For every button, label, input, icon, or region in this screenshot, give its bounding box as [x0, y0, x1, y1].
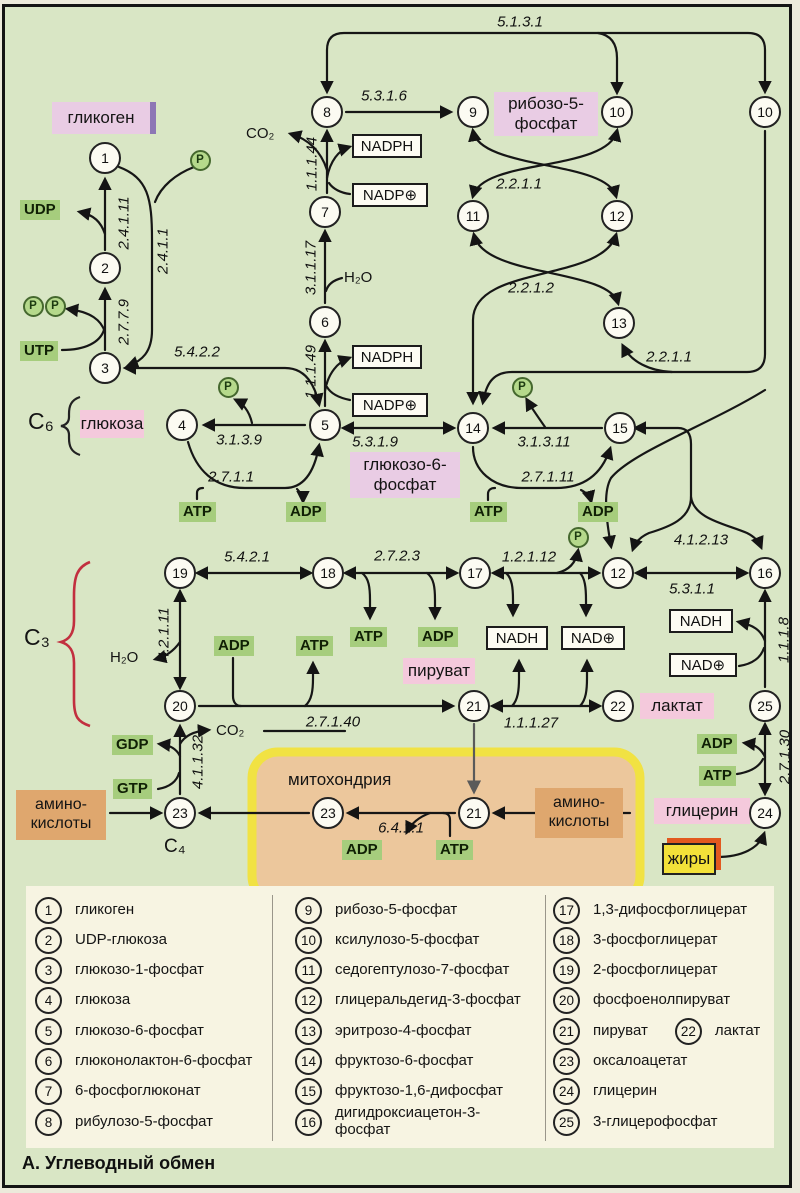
legend-entry: 16дигидроксиацетон-3- фосфат	[295, 1108, 480, 1136]
legend-entry: 11седогептулозо-7-фосфат	[295, 957, 509, 985]
pathway-arrow	[236, 400, 252, 423]
legend-node-17: 17	[553, 897, 580, 924]
coenzyme-box: NADPH	[352, 134, 422, 158]
coenzyme-box: NAD⊕	[561, 626, 625, 650]
metabolite-node-22: 22	[602, 690, 634, 722]
metabolite-node-7: 7	[309, 196, 341, 228]
ec-number-label: 1.1.1.49	[303, 345, 320, 399]
ec-number-label: 4.1.1.32	[190, 735, 207, 789]
legend-label: 3-фосфоглицерат	[593, 932, 717, 949]
legend-label: пируват	[593, 1023, 648, 1040]
legend-label: 1,3-дифосфоглицерат	[593, 902, 747, 919]
legend-node-4: 4	[35, 987, 62, 1014]
phosphate-marker: P	[568, 527, 589, 548]
figure-title: А. Углеводный обмен	[22, 1153, 215, 1174]
phosphate-marker: P	[512, 377, 533, 398]
legend-entry: 253-глицерофосфат	[553, 1108, 717, 1136]
metabolite-node-5: 5	[309, 409, 341, 441]
metabolite-node-18: 18	[312, 557, 344, 589]
pathway-arrow	[473, 131, 616, 196]
legend-node-14: 14	[295, 1048, 322, 1075]
pathway-arrow	[739, 648, 764, 666]
pathway-arrow	[68, 309, 105, 332]
pathway-arrow	[362, 573, 370, 617]
coenzyme-box: NAD⊕	[669, 653, 737, 677]
ec-number-label: 1.2.1.12	[502, 549, 556, 566]
pathway-arrow	[527, 400, 545, 427]
pathway-arrow	[80, 212, 105, 234]
ec-number-label: 1.1.1.8	[776, 617, 793, 663]
metabolite-node-15: 15	[604, 412, 636, 444]
legend-label: UDP-глюкоза	[75, 932, 167, 949]
pathway-arrow	[636, 428, 691, 497]
metabolite-node-11: 11	[457, 200, 489, 232]
metabolite-node-20: 20	[164, 690, 196, 722]
legend-label: глицерин	[593, 1083, 657, 1100]
pathway-arrow	[488, 488, 495, 500]
metabolite-node-6: 6	[309, 306, 341, 338]
cofactor-label-udp: UDP	[20, 200, 60, 220]
legend-label: лактат	[715, 1023, 760, 1040]
ec-number-label: 6.4.1.1	[378, 820, 424, 837]
legend-entry: 2UDP-глюкоза	[35, 926, 167, 954]
cofactor-label-utp: UTP	[20, 341, 58, 361]
c6-brace	[61, 397, 80, 455]
legend-label: глюкозо-6-фосфат	[75, 1023, 204, 1040]
pathway-arrow	[580, 573, 586, 614]
ec-number-label: 5.3.1.1	[669, 581, 715, 598]
metabolite-node-21: 21	[458, 797, 490, 829]
legend-node-25: 25	[553, 1109, 580, 1136]
legend-entry: 6глюконолактон-6-фосфат	[35, 1048, 252, 1076]
coenzyme-box: NADP⊕	[352, 393, 428, 417]
pathway-arrow	[557, 551, 578, 573]
legend-entry: 192-фосфоглицерат	[553, 957, 717, 985]
ec-number-label: 2.7.2.3	[374, 548, 420, 565]
metabolite-label: рибозо-5- фосфат	[494, 92, 598, 136]
legend-entry: 76-фосфоглюконат	[35, 1078, 201, 1106]
metabolite-node-23: 23	[312, 797, 344, 829]
legend-node-8: 8	[35, 1109, 62, 1136]
pathway-arrow	[745, 743, 765, 757]
ec-number-label: 2.4.1.11	[116, 196, 133, 249]
metabolite-label: амино- кислоты	[16, 790, 106, 840]
metabolite-node-23: 23	[164, 797, 196, 829]
metabolite-node-17: 17	[459, 557, 491, 589]
metabolite-node-12: 12	[602, 557, 634, 589]
legend-label: 6-фосфоглюконат	[75, 1083, 201, 1100]
ec-number-label: 5.3.1.9	[352, 434, 398, 451]
legend-node-5: 5	[35, 1018, 62, 1045]
pathway-arrow	[506, 573, 513, 614]
legend-node-6: 6	[35, 1048, 62, 1075]
legend-entry: 183-фосфоглицерат	[553, 926, 717, 954]
ec-number-label: 2.2.1.2	[508, 280, 554, 297]
legend-label: глюкозо-1-фосфат	[75, 962, 204, 979]
legend-node-1: 1	[35, 897, 62, 924]
legend-node-2: 2	[35, 927, 62, 954]
metabolite-node-1: 1	[89, 142, 121, 174]
legend-label: ксилулозо-5-фосфат	[335, 932, 479, 949]
pathway-arrow	[155, 167, 194, 202]
legend-node-7: 7	[35, 1078, 62, 1105]
metabolite-node-21: 21	[458, 690, 490, 722]
metabolite-node-24: 24	[749, 797, 781, 829]
pathway-arrow	[326, 278, 342, 291]
pathway-arrow	[739, 622, 765, 641]
legend-label: 3-глицерофосфат	[593, 1114, 717, 1131]
pathway-arrow	[606, 390, 765, 546]
legend-entry: 8рибулозо-5-фосфат	[35, 1108, 213, 1136]
cofactor-label-adp: ADP	[578, 502, 618, 522]
diagram-text: митохондрия	[288, 770, 391, 790]
legend-node-24: 24	[553, 1078, 580, 1105]
cofactor-label-adp: ADP	[697, 734, 737, 754]
coenzyme-box: NADH	[486, 626, 548, 650]
diagram-text: C₄	[164, 836, 185, 858]
ec-number-label: 5.1.3.1	[497, 14, 543, 31]
ec-number-label: 2.2.1.1	[496, 176, 542, 193]
pathway-arrow	[327, 387, 350, 400]
legend-entry: 13эритрозо-4-фосфат	[295, 1017, 472, 1045]
cofactor-label-adp: ADP	[342, 840, 382, 860]
ec-number-label: 2.7.1.40	[306, 714, 360, 731]
pathway-arrow	[737, 759, 763, 774]
metabolite-label: пируват	[403, 658, 475, 684]
metabolite-node-19: 19	[164, 557, 196, 589]
legend-label: глюкоза	[75, 992, 130, 1009]
ec-number-label: 5.4.2.1	[224, 549, 270, 566]
cofactor-label-atp: ATP	[179, 502, 216, 522]
cofactor-label-adp: ADP	[214, 636, 254, 656]
legend-entry: 3глюкозо-1-фосфат	[35, 957, 204, 985]
pathway-arrow	[327, 33, 765, 91]
ec-number-label: 3.1.3.11	[517, 434, 570, 451]
page: А. Углеводный обмен 12345678910101112131…	[0, 0, 800, 1193]
ec-number-label: 4.1.2.13	[674, 532, 728, 549]
legend-entry: 23оксалоацетат	[553, 1048, 687, 1076]
phosphate-marker: P	[218, 377, 239, 398]
pathway-arrow	[598, 33, 617, 92]
pathway-arrow	[329, 183, 350, 194]
phosphate-marker: P	[23, 296, 44, 317]
pathway-arrow	[62, 330, 104, 350]
diagram-text: C₆	[28, 408, 54, 435]
cofactor-label-gtp: GTP	[113, 779, 152, 799]
legend-entry: 171,3-дифосфоглицерат	[553, 896, 747, 924]
legend-label: гликоген	[75, 902, 134, 919]
legend-entry: 5глюкозо-6-фосфат	[35, 1017, 204, 1045]
legend-label: рибулозо-5-фосфат	[75, 1114, 213, 1131]
legend-entry: 20фосфоенолпируват	[553, 987, 730, 1015]
pathway-arrow	[297, 489, 303, 501]
phosphate-marker: P	[45, 296, 66, 317]
metabolite-label: лактат	[640, 693, 714, 719]
diagram-text: H₂O	[344, 269, 372, 286]
metabolite-label: глюкозо-6- фосфат	[350, 452, 460, 498]
pathway-arrow	[580, 662, 587, 706]
legend-divider	[272, 895, 273, 1141]
legend-entry: 14фруктозо-6-фосфат	[295, 1048, 473, 1076]
legend-node-19: 19	[553, 957, 580, 984]
legend-node-15: 15	[295, 1078, 322, 1105]
cofactor-label-atp: ATP	[470, 502, 507, 522]
metabolite-label: амино- кислоты	[535, 788, 623, 838]
ec-number-label: 2.7.7.9	[116, 299, 133, 345]
pathway-arrow	[158, 773, 179, 789]
ec-number-label: 3.1.3.9	[216, 432, 262, 449]
legend-label: эритрозо-4-фосфат	[335, 1023, 472, 1040]
pathway-arrow	[427, 573, 435, 617]
metabolite-node-14: 14	[457, 412, 489, 444]
legend-entry: 12глицеральдегид-3-фосфат	[295, 987, 521, 1015]
coenzyme-box: NADPH	[352, 345, 422, 369]
coenzyme-box: NADP⊕	[352, 183, 428, 207]
pathway-arrow	[581, 490, 591, 501]
legend-node-9: 9	[295, 897, 322, 924]
metabolite-node-9: 9	[457, 96, 489, 128]
legend-entry: 24глицерин	[553, 1078, 657, 1106]
metabolite-label: глицерин	[654, 798, 750, 824]
legend-node-23: 23	[553, 1048, 580, 1075]
legend-node-20: 20	[553, 987, 580, 1014]
ec-number-label: 2.7.1.1	[208, 469, 254, 486]
diagram-text: CO₂	[246, 125, 274, 142]
legend-entry: 10ксилулозо-5-фосфат	[295, 926, 479, 954]
cofactor-label-atp: ATP	[350, 627, 387, 647]
metabolite-node-8: 8	[311, 96, 343, 128]
diagram-text: C₃	[24, 624, 50, 651]
cofactor-label-adp: ADP	[286, 502, 326, 522]
legend-label: седогептулозо-7-фосфат	[335, 962, 509, 979]
legend-node-10: 10	[295, 927, 322, 954]
legend-divider	[545, 895, 546, 1141]
phosphate-marker: P	[190, 150, 211, 171]
pathway-arrow	[160, 744, 180, 756]
pathway-arrow	[717, 834, 764, 857]
ec-number-label: 2.7.1.11	[521, 469, 574, 486]
legend-node-11: 11	[295, 957, 322, 984]
legend-node-3: 3	[35, 957, 62, 984]
legend-entry: 4глюкоза	[35, 987, 130, 1015]
legend-label: фруктозо-1,6-дифосфат	[335, 1083, 503, 1100]
metabolite-node-25: 25	[749, 690, 781, 722]
legend-label: фруктозо-6-фосфат	[335, 1053, 473, 1070]
metabolite-label: жиры	[662, 843, 716, 875]
diagram-text: CO₂	[216, 722, 244, 739]
legend-node-18: 18	[553, 927, 580, 954]
ec-number-label: 5.3.1.6	[361, 88, 407, 105]
metabolite-node-16: 16	[749, 557, 781, 589]
cofactor-label-adp: ADP	[418, 627, 458, 647]
ec-number-label: 1.1.1.44	[304, 137, 321, 191]
ec-number-label: 2.7.1.30	[777, 730, 794, 784]
metabolite-node-4: 4	[166, 409, 198, 441]
legend-node-16: 16	[295, 1109, 322, 1136]
pathway-arrow	[305, 664, 313, 706]
legend-entry: 9рибозо-5-фосфат	[295, 896, 457, 924]
ec-number-label: 3.1.1.17	[303, 241, 320, 295]
metabolite-node-10: 10	[601, 96, 633, 128]
legend-label: фосфоенолпируват	[593, 992, 730, 1009]
cofactor-label-atp: ATP	[296, 636, 333, 656]
pathway-arrow	[233, 658, 241, 706]
pathway-arrow	[473, 131, 617, 196]
legend-label: рибозо-5-фосфат	[335, 902, 457, 919]
c3-brace	[61, 562, 90, 726]
pathway-arrow	[325, 358, 349, 391]
metabolite-node-12: 12	[601, 200, 633, 232]
legend-label: глюконолактон-6-фосфат	[75, 1053, 252, 1070]
legend-node-12: 12	[295, 987, 322, 1014]
ec-number-label: 4.2.1.11	[156, 607, 173, 660]
metabolite-node-13: 13	[603, 307, 635, 339]
legend-node-22: 22	[675, 1018, 702, 1045]
ec-number-label: 2.2.1.1	[646, 349, 692, 366]
legend-node-13: 13	[295, 1018, 322, 1045]
diagram-text: H₂O	[110, 649, 138, 666]
legend-label: глицеральдегид-3-фосфат	[335, 992, 521, 1009]
metabolite-label: гликоген	[52, 102, 156, 134]
legend-node-21: 21	[553, 1018, 580, 1045]
metabolite-node-2: 2	[89, 252, 121, 284]
ec-number-label: 1.1.1.27	[504, 715, 558, 732]
cofactor-label-atp: ATP	[699, 766, 736, 786]
legend-entry: 15фруктозо-1,6-дифосфат	[295, 1078, 503, 1106]
pathway-arrow	[197, 488, 203, 499]
legend-entry: 21пируват22лактат	[553, 1017, 760, 1045]
pathway-arrow	[512, 662, 519, 706]
legend-label: оксалоацетат	[593, 1053, 687, 1070]
metabolite-label: глюкоза	[80, 410, 144, 438]
pathway-arrow	[327, 147, 349, 178]
cofactor-label-gdp: GDP	[112, 735, 153, 755]
metabolite-node-10: 10	[749, 96, 781, 128]
ec-number-label: 5.4.2.2	[174, 344, 220, 361]
legend-label: 2-фосфоглицерат	[593, 962, 717, 979]
legend-entry: 1гликоген	[35, 896, 134, 924]
legend-label: дигидроксиацетон-3- фосфат	[335, 1105, 480, 1139]
ec-number-label: 2.4.1.1	[155, 228, 172, 274]
coenzyme-box: NADH	[669, 609, 733, 633]
metabolite-node-3: 3	[89, 352, 121, 384]
cofactor-label-atp: ATP	[436, 840, 473, 860]
